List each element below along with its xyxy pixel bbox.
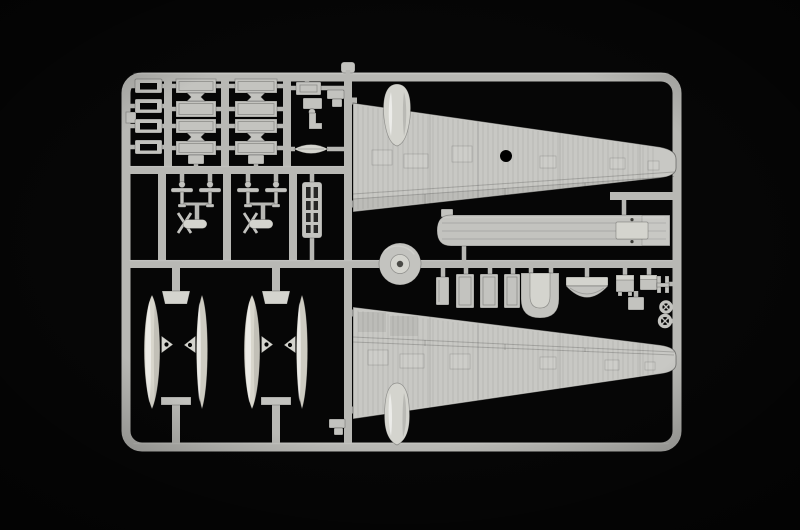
ladder-frame	[302, 182, 322, 238]
engine-nacelle-lower	[384, 383, 409, 445]
float-top-tab	[162, 291, 190, 304]
small-bracket	[303, 98, 322, 109]
small-plate	[628, 297, 644, 310]
wheel-drum-disc	[379, 243, 421, 285]
wing-locating-hole	[500, 150, 512, 162]
u-channel-cowl	[521, 273, 559, 318]
sprue-photo: Light grey injection-moulded model aircr…	[0, 0, 800, 530]
spoked-pulley	[661, 302, 671, 312]
floor-tongue	[616, 222, 648, 239]
frame-tab	[126, 112, 136, 123]
bottom-tab	[188, 155, 204, 164]
float-bridge	[261, 397, 291, 405]
float-top-tab	[262, 291, 290, 304]
photo-stage: Light grey injection-moulded model aircr…	[0, 0, 800, 530]
bottom-tab	[248, 155, 264, 164]
float-bridge	[161, 397, 191, 405]
